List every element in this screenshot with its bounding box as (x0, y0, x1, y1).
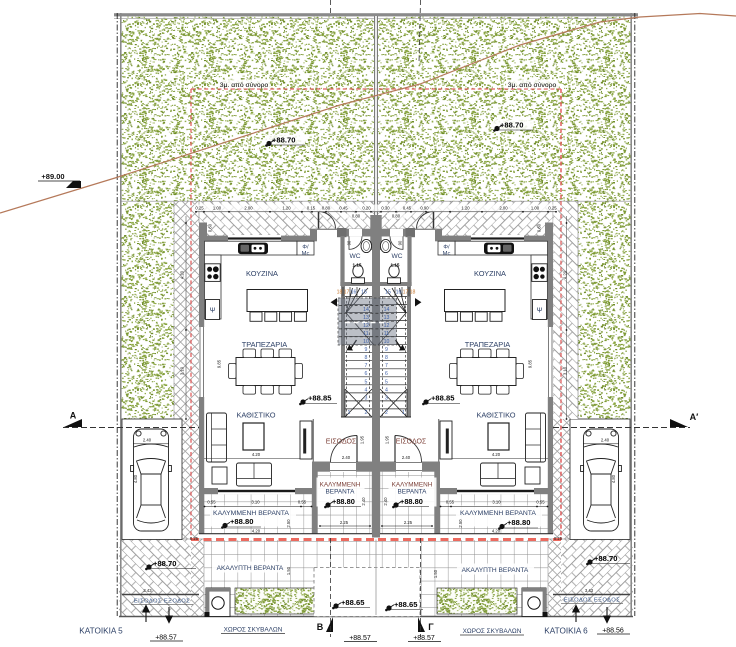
svg-text:0.80: 0.80 (352, 214, 361, 219)
svg-text:+88.85: +88.85 (431, 394, 455, 403)
svg-text:ΕΙΣΟΔΟΣ ΕΞΟΔΟΣ: ΕΙΣΟΔΟΣ ΕΞΟΔΟΣ (134, 599, 190, 605)
svg-text:8: 8 (365, 355, 368, 361)
svg-text:+88.57: +88.57 (155, 635, 177, 642)
svg-text:16: 16 (396, 290, 402, 296)
svg-text:7: 7 (385, 363, 388, 369)
svg-text:ΕΙΣΟΔΟΣ ΕΞΟΔΟΣ: ΕΙΣΟΔΟΣ ΕΞΟΔΟΣ (564, 598, 620, 604)
svg-text:+88.56: +88.56 (602, 628, 624, 635)
svg-text:0.55: 0.55 (298, 500, 307, 505)
svg-text:4.20: 4.20 (252, 452, 261, 457)
svg-text:+88.65: +88.65 (394, 600, 418, 609)
svg-text:0.45: 0.45 (403, 206, 412, 211)
svg-text:6: 6 (385, 371, 388, 377)
svg-text:1.95: 1.95 (360, 435, 365, 444)
svg-text:3: 3 (365, 395, 368, 401)
svg-text:15: 15 (385, 290, 391, 296)
svg-text:1.00: 1.00 (213, 206, 222, 211)
svg-text:3.10: 3.10 (492, 500, 501, 505)
svg-text:2.00: 2.00 (499, 206, 508, 211)
svg-text:1.50: 1.50 (433, 569, 438, 578)
svg-text:2.25: 2.25 (340, 520, 349, 525)
svg-text:ΧΩΡΟΣ ΣΚΥΒΑΛΩΝ: ΧΩΡΟΣ ΣΚΥΒΑΛΩΝ (463, 628, 522, 635)
svg-text:+88.70: +88.70 (153, 559, 176, 568)
svg-text:Ψ: Ψ (210, 308, 216, 315)
svg-text:4.20: 4.20 (180, 270, 185, 279)
svg-text:ΚΑΛΥΜΜΕΝΗ ΒΕΡΑΝΤΑ: ΚΑΛΥΜΜΕΝΗ ΒΕΡΑΝΤΑ (460, 510, 536, 517)
svg-text:0.60: 0.60 (537, 223, 542, 232)
svg-text:A: A (70, 411, 77, 421)
svg-text:9.85: 9.85 (217, 359, 222, 368)
svg-text:ΒΕΡΑΝΤΑ: ΒΕΡΑΝΤΑ (398, 489, 428, 496)
svg-text:3μ. από σύνορο: 3μ. από σύνορο (508, 81, 557, 89)
svg-text:0.15: 0.15 (307, 206, 316, 211)
svg-text:2.40: 2.40 (402, 455, 411, 460)
svg-text:+88.80: +88.80 (507, 518, 530, 527)
svg-text:+88.80: +88.80 (230, 517, 253, 526)
svg-text:2.40: 2.40 (383, 497, 388, 506)
svg-text:0.55: 0.55 (446, 500, 455, 505)
svg-text:4: 4 (365, 387, 368, 393)
svg-text:7: 7 (365, 363, 368, 369)
svg-text:18: 18 (337, 290, 343, 296)
svg-text:0.25: 0.25 (554, 536, 563, 541)
svg-text:0.25: 0.25 (195, 206, 204, 211)
svg-text:9: 9 (385, 347, 388, 353)
svg-text:17: 17 (403, 290, 409, 296)
svg-text:4.80: 4.80 (611, 474, 616, 483)
svg-text:+88.70: +88.70 (500, 121, 523, 130)
svg-text:ΚΑΤΟΙΚΙΑ 5: ΚΑΤΟΙΚΙΑ 5 (79, 627, 123, 636)
svg-text:2.40: 2.40 (342, 455, 351, 460)
svg-text:1.15: 1.15 (391, 263, 400, 268)
svg-text:14: 14 (384, 307, 390, 313)
svg-text:0.30: 0.30 (381, 206, 390, 211)
svg-text:4.20: 4.20 (563, 270, 568, 279)
svg-text:ΚΑΘΙΣΤΙΚΟ: ΚΑΘΙΣΤΙΚΟ (476, 411, 515, 420)
svg-text:+88.80: +88.80 (400, 497, 423, 506)
svg-text:0.55: 0.55 (207, 500, 216, 505)
svg-text:10: 10 (363, 339, 369, 345)
svg-text:9: 9 (365, 347, 368, 353)
svg-text:1.20: 1.20 (282, 206, 291, 211)
svg-text:3μ. από σύνορο: 3μ. από σύνορο (220, 81, 269, 89)
svg-text:1.00: 1.00 (531, 206, 540, 211)
svg-text:Mc: Mc (443, 251, 451, 257)
svg-text:16: 16 (351, 290, 357, 296)
svg-text:2.40: 2.40 (143, 438, 152, 443)
svg-text:4.20: 4.20 (492, 452, 501, 457)
svg-text:+88.70: +88.70 (272, 136, 295, 145)
svg-text:0.80: 0.80 (322, 206, 331, 211)
svg-text:Φ/: Φ/ (302, 245, 309, 251)
svg-text:+88.57: +88.57 (349, 635, 371, 642)
svg-text:12: 12 (384, 323, 390, 329)
svg-text:ΚΑΤΟΙΚΙΑ 6: ΚΑΤΟΙΚΙΑ 6 (544, 627, 588, 636)
svg-text:ΚΑΘΙΣΤΙΚΟ: ΚΑΘΙΣΤΙΚΟ (236, 411, 275, 420)
svg-text:3.10: 3.10 (563, 366, 568, 375)
svg-text:B: B (317, 622, 324, 632)
svg-text:1.95: 1.95 (385, 435, 390, 444)
svg-text:2.50: 2.50 (286, 519, 291, 528)
svg-text:ΤΡΑΠΕΖΑΡΙΑ: ΤΡΑΠΕΖΑΡΙΑ (465, 340, 511, 349)
svg-text:2.00: 2.00 (244, 206, 253, 211)
svg-text:3.43: 3.43 (585, 588, 594, 593)
svg-text:+88.70: +88.70 (594, 554, 617, 563)
svg-text:2.40: 2.40 (601, 438, 610, 443)
svg-text:3: 3 (385, 395, 388, 401)
svg-text:Ψ: Ψ (537, 308, 543, 315)
svg-text:11: 11 (363, 331, 368, 337)
svg-text:+88.57: +88.57 (413, 635, 435, 642)
svg-text:9.85: 9.85 (528, 359, 533, 368)
svg-text:90: 90 (398, 240, 403, 245)
svg-text:0.80: 0.80 (392, 214, 401, 219)
svg-text:ΤΡΑΠΕΖΑΡΙΑ: ΤΡΑΠΕΖΑΡΙΑ (242, 340, 288, 349)
svg-text:ΚΟΥΖΙΝΑ: ΚΟΥΖΙΝΑ (246, 269, 278, 278)
svg-text:0.25: 0.25 (190, 536, 199, 541)
svg-text:+88.65: +88.65 (341, 598, 365, 607)
svg-text:A′: A′ (690, 412, 699, 422)
svg-text:0.45: 0.45 (339, 206, 348, 211)
svg-text:WC: WC (350, 253, 361, 260)
svg-text:13: 13 (363, 315, 369, 321)
svg-text:ΒΕΡΑΝΤΑ: ΒΕΡΑΝΤΑ (326, 489, 356, 496)
svg-text:5: 5 (365, 379, 368, 385)
svg-text:Mc: Mc (302, 251, 310, 257)
svg-text:0.20: 0.20 (362, 206, 371, 211)
svg-text:ΧΩΡΟΣ ΣΚΥΒΑΛΩΝ: ΧΩΡΟΣ ΣΚΥΒΑΛΩΝ (224, 627, 283, 634)
svg-text:ΚΟΥΖΙΝΑ: ΚΟΥΖΙΝΑ (474, 269, 506, 278)
svg-text:2.40: 2.40 (361, 497, 366, 506)
svg-text:+88.80: +88.80 (332, 497, 355, 506)
svg-text:1.15: 1.15 (353, 263, 362, 268)
svg-text:3.10: 3.10 (251, 500, 260, 505)
svg-text:0.25: 0.25 (548, 206, 557, 211)
svg-text:4.20: 4.20 (252, 529, 261, 534)
svg-text:15: 15 (361, 290, 367, 296)
svg-text:ΕΙΣΟΔΟΣ: ΕΙΣΟΔΟΣ (326, 439, 357, 446)
svg-text:10: 10 (384, 339, 390, 345)
svg-text:1: 1 (348, 410, 351, 416)
svg-text:2: 2 (365, 410, 368, 416)
svg-text:17: 17 (344, 290, 350, 296)
svg-text:+89.00: +89.00 (41, 172, 64, 181)
svg-text:2: 2 (385, 410, 388, 416)
svg-text:ΕΙΣΟΔΟΣ: ΕΙΣΟΔΟΣ (396, 439, 427, 446)
svg-text:3.43: 3.43 (143, 588, 152, 593)
svg-text:0.90: 0.90 (420, 206, 429, 211)
svg-text:3.10: 3.10 (180, 366, 185, 375)
svg-text:0.60: 0.60 (208, 223, 213, 232)
svg-text:+88.85: +88.85 (308, 394, 332, 403)
svg-text:4.20: 4.20 (492, 529, 501, 534)
svg-text:6: 6 (365, 371, 368, 377)
svg-text:2.50: 2.50 (458, 519, 463, 528)
svg-text:1.20: 1.20 (461, 206, 470, 211)
svg-text:1: 1 (402, 410, 405, 416)
svg-text:12: 12 (363, 323, 369, 329)
svg-text:1.50: 1.50 (286, 566, 291, 575)
svg-text:0.55: 0.55 (536, 500, 545, 505)
svg-text:WC: WC (392, 253, 403, 260)
svg-text:13: 13 (384, 315, 390, 321)
svg-text:11: 11 (384, 331, 389, 337)
svg-text:18: 18 (410, 290, 416, 296)
svg-text:ΑΚΑΛΥΠΤΗ ΒΕΡΑΝΤΑ: ΑΚΑΛΥΠΤΗ ΒΕΡΑΝΤΑ (462, 567, 529, 574)
svg-text:2.25: 2.25 (404, 520, 413, 525)
svg-text:8: 8 (385, 355, 388, 361)
svg-text:ΑΚΑΛΥΠΤΗ ΒΕΡΑΝΤΑ: ΑΚΑΛΥΠΤΗ ΒΕΡΑΝΤΑ (217, 565, 284, 572)
svg-text:Γ: Γ (428, 622, 434, 632)
svg-text:ΚΑΛΥΜΜΕΝΗ ΒΕΡΑΝΤΑ: ΚΑΛΥΜΜΕΝΗ ΒΕΡΑΝΤΑ (213, 510, 289, 517)
svg-text:14: 14 (363, 307, 369, 313)
svg-text:ΚΑΛΥΜΜΕΝΗ: ΚΑΛΥΜΜΕΝΗ (392, 482, 433, 489)
svg-text:Φ/: Φ/ (443, 245, 450, 251)
svg-text:ΚΑΛΥΜΜΕΝΗ: ΚΑΛΥΜΜΕΝΗ (320, 482, 361, 489)
svg-text:4.80: 4.80 (133, 474, 138, 483)
svg-text:90: 90 (347, 240, 352, 245)
svg-text:5: 5 (385, 379, 388, 385)
svg-text:4: 4 (385, 387, 388, 393)
